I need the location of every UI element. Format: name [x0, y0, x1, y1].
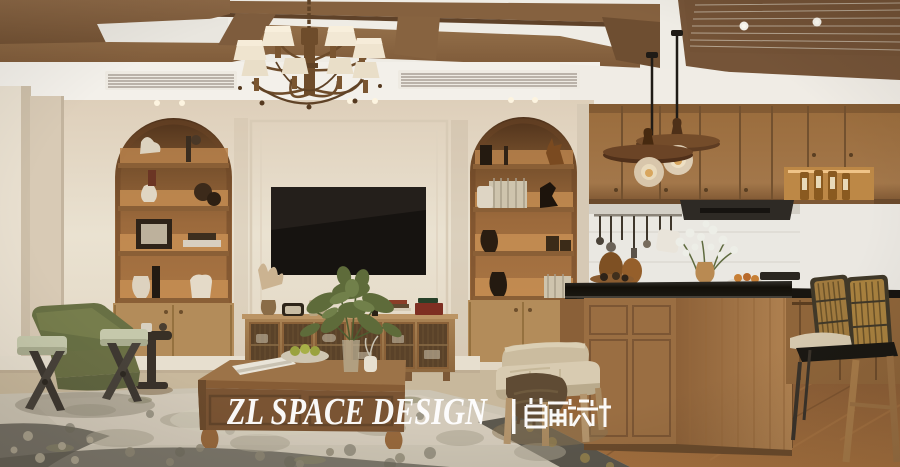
svg-text:ZL SPACE DESIGN: ZL SPACE DESIGN: [226, 391, 488, 433]
